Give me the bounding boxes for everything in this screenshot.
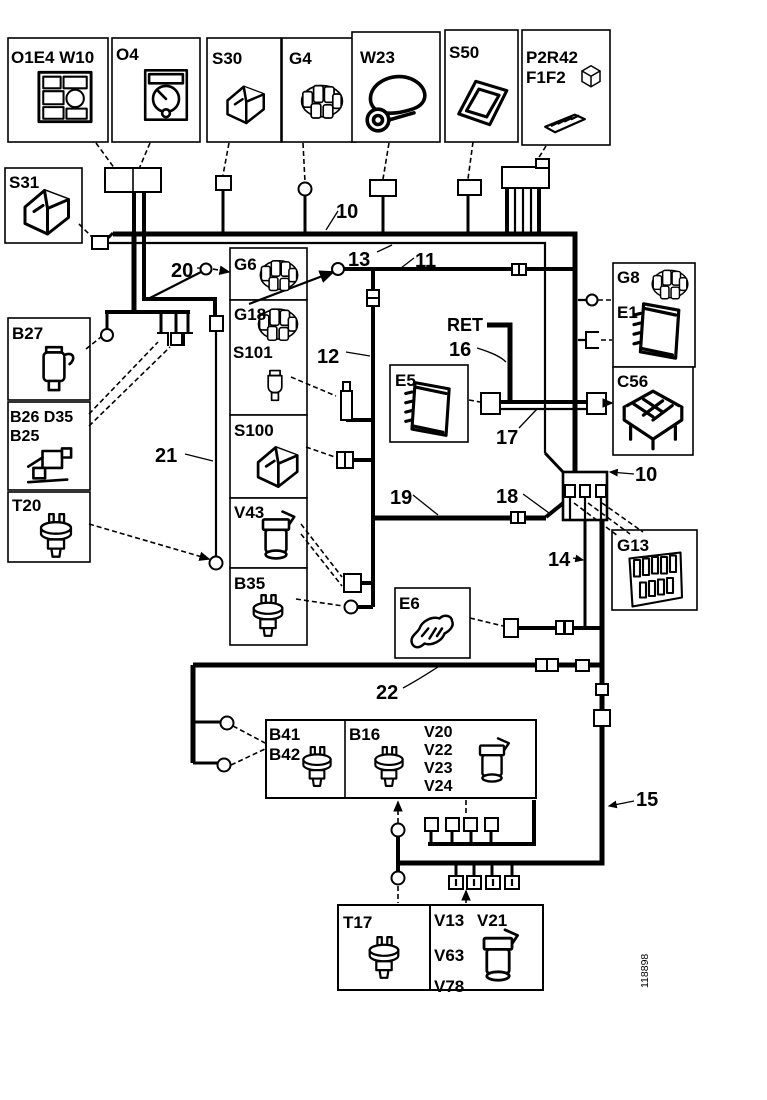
label-t20: T20	[12, 496, 41, 515]
connector-g6	[201, 264, 212, 275]
connector-s100-a	[337, 452, 345, 468]
label-v78: V78	[434, 977, 464, 996]
label-v63: V63	[434, 946, 464, 965]
g13-fuse-panel-icon	[630, 553, 683, 607]
label-v23: V23	[424, 760, 453, 777]
connector-s100-b	[345, 452, 353, 468]
wire-ret	[487, 325, 510, 400]
label-w23: W23	[360, 48, 395, 67]
connectors-lower-row	[449, 876, 519, 889]
label-b25: B25	[10, 428, 39, 445]
wire-label-14: 14	[548, 549, 571, 571]
label-b35: B35	[234, 574, 265, 593]
leader-num-15	[609, 801, 634, 806]
junction-connector-a	[565, 485, 575, 497]
wire-label-15: 15	[636, 789, 658, 811]
label-b16: B16	[349, 725, 380, 744]
connector-b35	[345, 601, 358, 614]
leader-g6	[213, 269, 229, 272]
leader-o4	[139, 143, 150, 169]
leader-e6	[470, 618, 503, 626]
connector-b16	[392, 824, 405, 837]
connector-b41	[221, 717, 234, 730]
leader-b26	[89, 342, 158, 414]
leader-num-12	[346, 352, 370, 356]
label-g18: G18	[234, 305, 266, 324]
label-v43: V43	[234, 503, 264, 522]
connector-18-b	[518, 512, 525, 523]
wire-label-17: 17	[496, 427, 518, 449]
wire-label-22: 22	[376, 682, 398, 704]
label-v24: V24	[424, 778, 453, 795]
label-g13: G13	[617, 536, 649, 555]
wire-label-20: 20	[171, 260, 193, 282]
connector-e5	[481, 393, 500, 414]
wire-22-stubs	[193, 722, 222, 763]
leader-b25	[89, 347, 170, 426]
label-b27: B27	[12, 324, 43, 343]
label-v22: V22	[424, 742, 453, 759]
label-c56: C56	[617, 372, 648, 391]
label-g6: G6	[234, 255, 257, 274]
connector-s31	[92, 236, 108, 249]
wire-label-19: 19	[390, 487, 412, 509]
e1-ecu-icon	[634, 304, 679, 358]
connector-s30	[216, 176, 231, 190]
wire-19-lower	[358, 518, 373, 607]
label-g4: G4	[289, 49, 312, 68]
label-s30: S30	[212, 49, 242, 68]
label-s101: S101	[233, 343, 273, 362]
leader-num-21	[185, 454, 213, 461]
connector-s101-top	[343, 382, 350, 391]
connector-e1-ring	[587, 295, 598, 306]
wire-label-13: 13	[348, 249, 370, 271]
wire-label-11: 11	[415, 250, 436, 272]
label-e1: E1	[617, 303, 638, 322]
connector-inj-3	[464, 818, 477, 831]
connector-e6-line-b	[565, 621, 573, 634]
leader-b41	[233, 726, 265, 743]
leader-num-17	[519, 409, 537, 428]
leader-g4	[303, 143, 305, 182]
connector-w23	[370, 180, 396, 196]
wire-e1-taps	[578, 300, 586, 340]
leader-num-16	[477, 348, 506, 362]
connector-11-a	[512, 264, 519, 275]
label-v21: V21	[477, 911, 507, 930]
leader-num-11	[401, 258, 414, 268]
g4-round-connector-icon	[302, 86, 343, 118]
wire-label-16: 16	[449, 339, 471, 361]
connector-inj-2	[446, 818, 459, 831]
connector-s50	[458, 180, 481, 195]
leader-t20	[89, 524, 209, 559]
leader-w23	[383, 143, 389, 179]
connector-22-c	[576, 660, 589, 671]
leader-num-22	[403, 667, 438, 688]
wiring-diagram: O1E4 W10 O4 S30 G4 W23 S50 P2R42 F1F2 S3…	[0, 0, 767, 1100]
connector-18-a	[511, 512, 518, 523]
connector-v43	[344, 574, 361, 592]
connector-12-b	[367, 298, 379, 306]
gauge-icon	[145, 70, 187, 119]
label-b42: B42	[269, 745, 300, 764]
connector-b42	[218, 759, 231, 772]
label-e5: E5	[395, 371, 416, 390]
wire-injector-bar	[428, 800, 536, 844]
connector-s101	[341, 391, 352, 420]
connector-12-a	[367, 290, 379, 298]
wire-drops-p2-inner	[515, 188, 531, 232]
leader-s100	[306, 447, 335, 457]
wire-15	[398, 520, 602, 863]
wiring-diagram-page: O1E4 W10 O4 S30 G4 W23 S50 P2R42 F1F2 S3…	[0, 0, 767, 1100]
connector-p2r42	[502, 167, 549, 188]
instrument-cluster-icon	[39, 72, 91, 121]
connector-jog	[210, 316, 223, 331]
leader-num-14	[573, 558, 583, 560]
leader-p2r42	[538, 146, 546, 159]
wire-label-10-right: 10	[635, 464, 657, 486]
e5-ecu-icon	[406, 383, 449, 436]
g6-round-connector-icon	[260, 261, 297, 291]
connector-p2r42-tab	[536, 159, 549, 168]
connector-15-b	[594, 710, 610, 726]
leader-b42	[231, 749, 265, 765]
leader-s50	[468, 142, 473, 179]
label-b26-d35: B26 D35	[10, 409, 73, 426]
wire-label-12: 12	[317, 346, 339, 368]
connector-22-b	[547, 659, 558, 671]
label-o1e4-w10: O1E4 W10	[11, 48, 94, 67]
connector-inj-1	[425, 818, 438, 831]
p2r42-relay-icon	[582, 66, 600, 87]
leader-num-10-right	[610, 472, 634, 474]
connector-e1-bracket	[586, 332, 599, 348]
connector-v-ticks	[456, 879, 512, 886]
wire-label-10-top: 10	[336, 201, 358, 223]
leader-o1e4	[96, 143, 115, 169]
wire-label-21: 21	[155, 445, 177, 467]
label-b41: B41	[269, 725, 300, 744]
connector-15-a	[596, 684, 608, 695]
connector-e6-line-a	[556, 621, 564, 634]
leader-num-18	[523, 494, 549, 513]
connector-g18	[332, 263, 344, 275]
label-v20: V20	[424, 724, 453, 741]
junction-connector-b	[580, 485, 590, 497]
leader-s30	[223, 143, 229, 175]
leader-e5	[469, 400, 480, 402]
label-o4: O4	[116, 45, 139, 64]
label-s50: S50	[449, 43, 479, 62]
connector-22-a	[536, 659, 547, 671]
wire-left-bar-drops	[107, 312, 188, 333]
wire-drop-cluster	[134, 192, 144, 234]
connector-inj-4	[485, 818, 498, 831]
label-g8: G8	[617, 268, 640, 287]
wire-label-18: 18	[496, 486, 518, 508]
connector-b27	[101, 329, 113, 341]
leader-num-19	[413, 495, 438, 515]
label-s31: S31	[9, 173, 39, 192]
wire-13-diagonal	[545, 453, 563, 472]
label-t17: T17	[343, 913, 372, 932]
connector-g4	[299, 183, 312, 196]
label-s100: S100	[234, 421, 274, 440]
g8-round-connector-icon	[652, 270, 688, 298]
connector-d35	[171, 333, 182, 345]
label-f1f2: F1F2	[526, 68, 566, 87]
connector-b25	[184, 333, 193, 346]
connector-t20	[210, 557, 223, 570]
leader-num-13	[377, 245, 392, 252]
label-v13: V13	[434, 911, 464, 930]
label-p2r42: P2R42	[526, 48, 578, 67]
connector-11-b	[519, 264, 526, 275]
junction-connector-c	[596, 485, 606, 497]
connector-t17	[392, 872, 405, 885]
wire-label-ret: RET	[447, 315, 483, 335]
connector-e6	[504, 619, 518, 637]
figure-number: 118898	[639, 954, 651, 988]
connector-b26	[157, 333, 168, 346]
connector-17-right	[587, 393, 606, 414]
label-e6: E6	[399, 594, 420, 613]
